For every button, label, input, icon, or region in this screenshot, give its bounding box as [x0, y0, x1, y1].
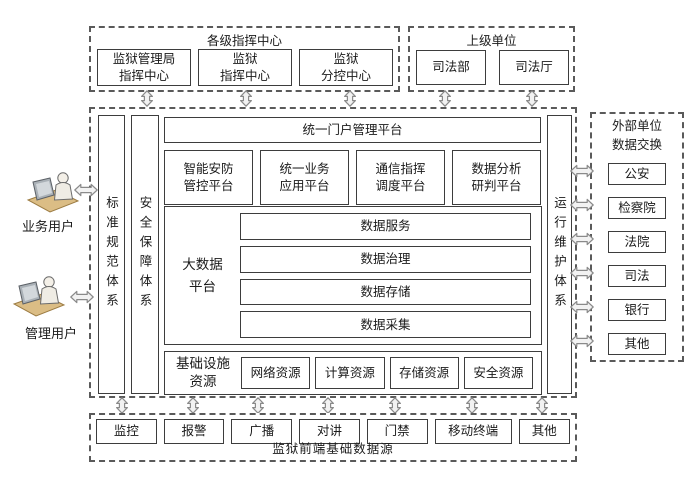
- data-collection-layer-box: 数据采集: [240, 311, 531, 338]
- double-arrow-horizontal-icon: [570, 198, 594, 212]
- admin-user-label: 管理用户: [9, 323, 93, 342]
- superior-units-group: 上级单位 司法部 司法厅: [408, 26, 575, 92]
- security-control-platform-box: 智能安防 管控平台: [164, 150, 253, 205]
- bureau-command-center-box: 监狱管理局 指挥中心: [97, 49, 191, 86]
- double-arrow-vertical-icon: [344, 90, 356, 107]
- infrastructure-resources-label: 基础设施 资源: [165, 352, 241, 394]
- external-units-list: 公安 检察院 法院 司法 银行 其他: [592, 163, 682, 355]
- workstation-icon: [26, 169, 80, 213]
- superior-units-row: 司法部 司法厅: [416, 50, 569, 85]
- double-arrow-vertical-icon: [116, 397, 128, 414]
- double-arrow-vertical-icon: [389, 397, 401, 414]
- application-platforms-row: 智能安防 管控平台 统一业务 应用平台 通信指挥 调度平台 数据分析 研判平台: [164, 150, 541, 205]
- infrastructure-items-row: 网络资源 计算资源 存储资源 安全资源: [241, 357, 533, 389]
- business-user-label: 业务用户: [6, 216, 90, 235]
- double-arrow-vertical-icon: [536, 397, 548, 414]
- double-arrow-vertical-icon: [466, 397, 478, 414]
- main-platform-group: 标准规范体系 安全保障体系 运行维护体系 统一门户管理平台 智能安防 管控平台 …: [89, 107, 577, 398]
- public-security-box: 公安: [608, 163, 666, 185]
- double-arrow-horizontal-icon: [570, 300, 594, 314]
- unified-portal-platform-box: 统一门户管理平台: [164, 117, 541, 143]
- external-units-title: 外部单位 数据交换: [592, 117, 682, 156]
- double-arrow-horizontal-icon: [570, 334, 594, 348]
- double-arrow-vertical-icon: [439, 90, 451, 107]
- double-arrow-vertical-icon: [526, 90, 538, 107]
- command-centers-group: 各级指挥中心 监狱管理局 指挥中心 监狱 指挥中心 监狱 分控中心: [89, 26, 400, 92]
- network-resource-box: 网络资源: [241, 357, 310, 389]
- prison-subcontrol-center-box: 监狱 分控中心: [299, 49, 393, 86]
- double-arrow-horizontal-icon: [570, 232, 594, 246]
- double-arrow-horizontal-icon: [570, 164, 594, 178]
- workstation-icon: [12, 273, 66, 317]
- security-resource-box: 安全资源: [464, 357, 533, 389]
- procuratorate-box: 检察院: [608, 197, 666, 219]
- double-arrow-horizontal-icon: [70, 290, 94, 304]
- data-storage-layer-box: 数据存储: [240, 279, 531, 306]
- external-units-group: 外部单位 数据交换 公安 检察院 法院 司法 银行 其他: [590, 112, 684, 362]
- standards-system-pillar: 标准规范体系: [98, 115, 125, 394]
- data-service-layer-box: 数据服务: [240, 213, 531, 240]
- communication-dispatch-platform-box: 通信指挥 调度平台: [356, 150, 445, 205]
- compute-resource-box: 计算资源: [315, 357, 384, 389]
- frontend-sources-title: 监狱前端基础数据源: [91, 438, 575, 457]
- data-governance-layer-box: 数据治理: [240, 246, 531, 273]
- business-application-platform-box: 统一业务 应用平台: [260, 150, 349, 205]
- storage-resource-box: 存储资源: [390, 357, 459, 389]
- prison-command-center-box: 监狱 指挥中心: [198, 49, 292, 86]
- justice-box: 司法: [608, 265, 666, 287]
- operation-maintenance-pillar: 运行维护体系: [547, 115, 572, 394]
- bigdata-platform-box: 大数据 平台 数据服务 数据治理 数据存储 数据采集: [164, 206, 542, 345]
- superior-units-title: 上级单位: [410, 30, 573, 49]
- ministry-of-justice-box: 司法部: [416, 50, 486, 85]
- double-arrow-vertical-icon: [322, 397, 334, 414]
- infrastructure-resources-box: 基础设施 资源 网络资源 计算资源 存储资源 安全资源: [164, 351, 542, 395]
- double-arrow-horizontal-icon: [74, 183, 98, 197]
- security-assurance-pillar: 安全保障体系: [131, 115, 159, 394]
- double-arrow-vertical-icon: [252, 397, 264, 414]
- double-arrow-vertical-icon: [240, 90, 252, 107]
- command-centers-title: 各级指挥中心: [91, 30, 398, 49]
- double-arrow-vertical-icon: [187, 397, 199, 414]
- data-analysis-platform-box: 数据分析 研判平台: [452, 150, 541, 205]
- court-box: 法院: [608, 231, 666, 253]
- command-centers-row: 监狱管理局 指挥中心 监狱 指挥中心 监狱 分控中心: [97, 49, 393, 86]
- frontend-sources-group: 监控 报警 广播 对讲 门禁 移动终端 其他 监狱前端基础数据源: [89, 413, 577, 462]
- external-other-box: 其他: [608, 333, 666, 355]
- bigdata-platform-label: 大数据 平台: [165, 207, 240, 344]
- justice-department-box: 司法厅: [499, 50, 569, 85]
- double-arrow-horizontal-icon: [570, 266, 594, 280]
- prison-system-architecture-diagram: 各级指挥中心 监狱管理局 指挥中心 监狱 指挥中心 监狱 分控中心 上级单位 司…: [0, 0, 688, 488]
- bigdata-layers: 数据服务 数据治理 数据存储 数据采集: [240, 213, 531, 338]
- double-arrow-vertical-icon: [141, 90, 153, 107]
- bank-box: 银行: [608, 299, 666, 321]
